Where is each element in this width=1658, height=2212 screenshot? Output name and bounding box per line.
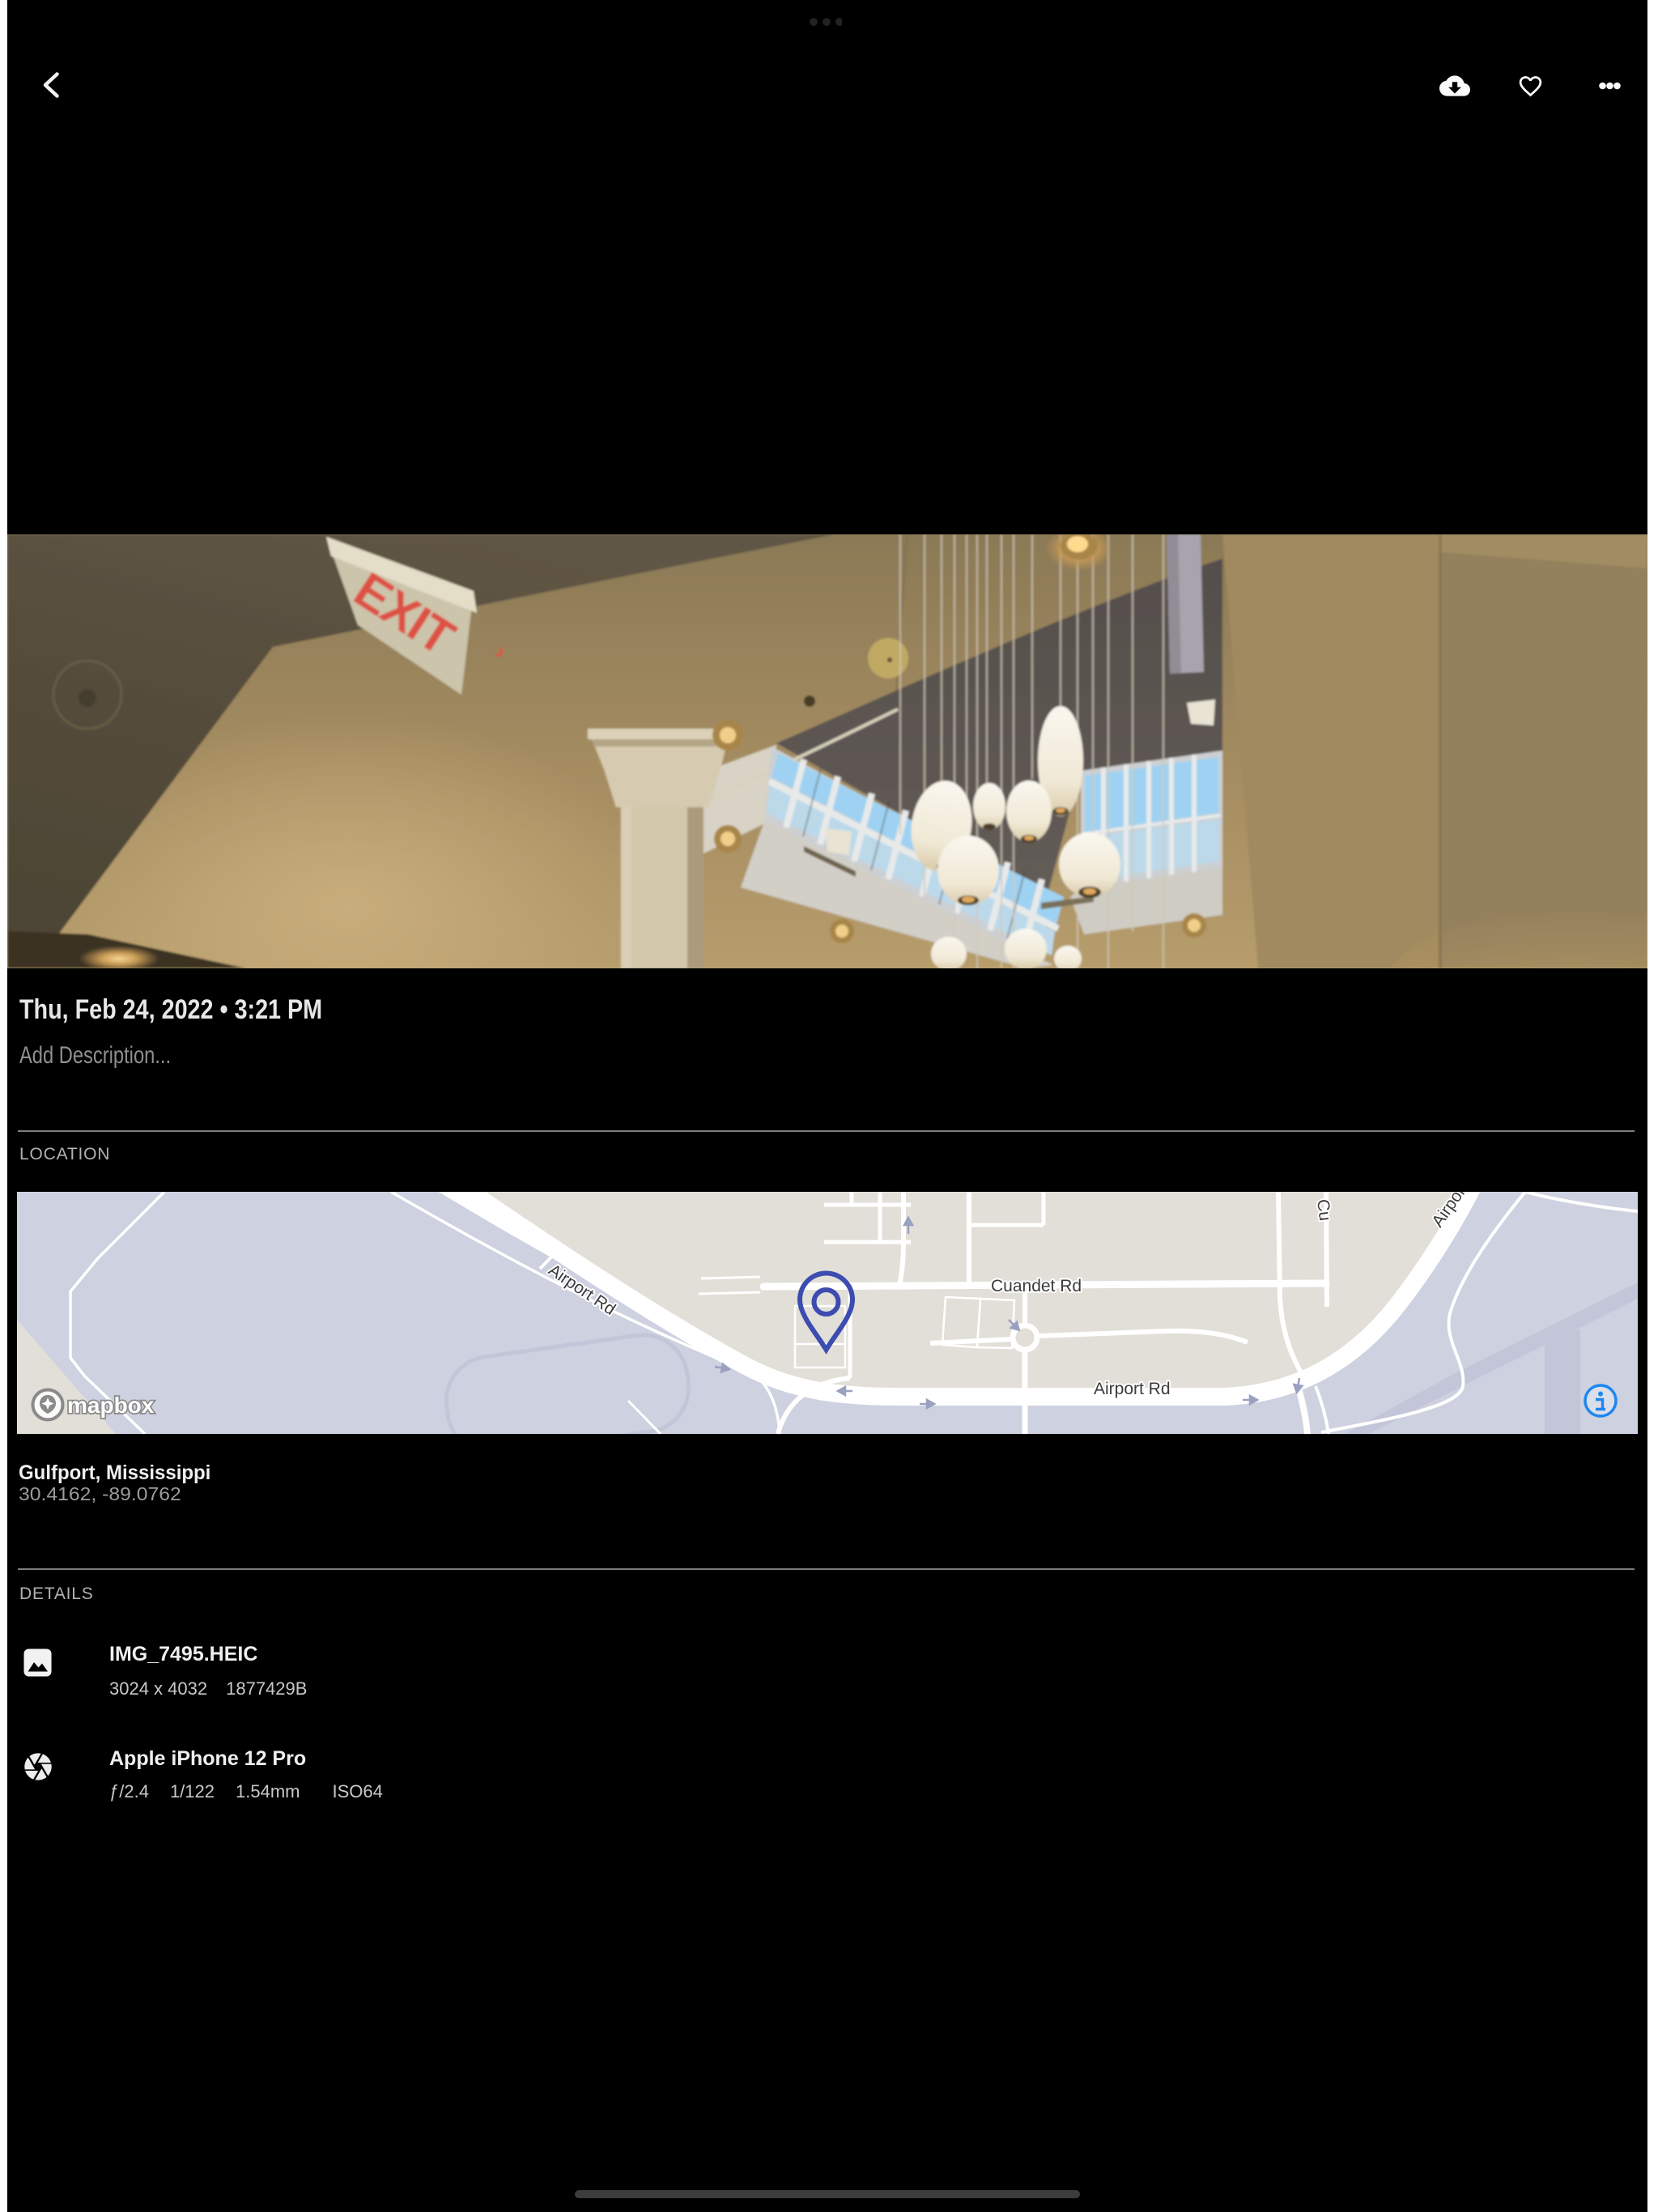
svg-text:Airport Rd: Airport Rd: [1094, 1380, 1171, 1398]
svg-text:Cuandet Rd: Cuandet Rd: [991, 1277, 1082, 1295]
svg-text:Cu: Cu: [1313, 1198, 1334, 1222]
svg-text:mapbox: mapbox: [67, 1393, 155, 1418]
